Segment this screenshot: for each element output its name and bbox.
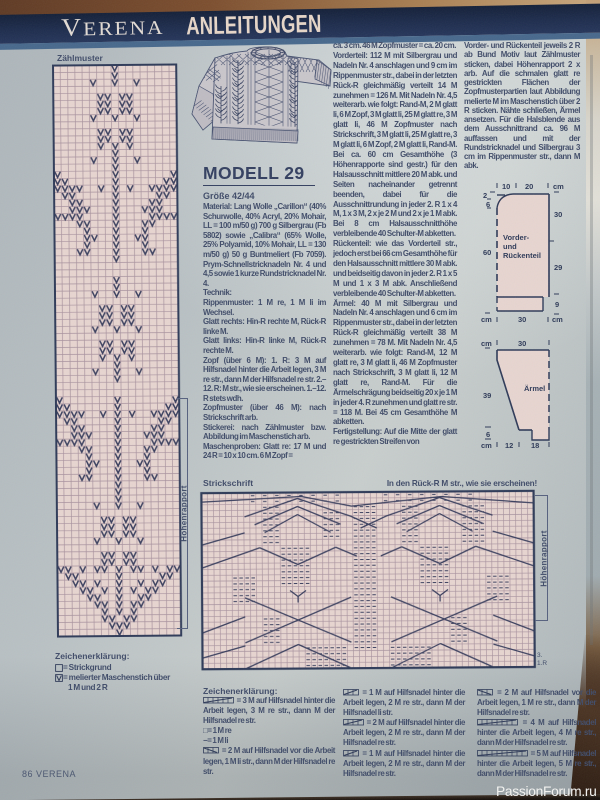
svg-text:Rückenteil: Rückenteil — [503, 251, 541, 260]
svg-text:Vorder-: Vorder- — [503, 233, 530, 242]
svg-text:29: 29 — [554, 263, 562, 272]
svg-text:18: 18 — [531, 441, 539, 449]
svg-text:39: 39 — [483, 391, 491, 400]
svg-text:30: 30 — [518, 339, 526, 348]
svg-text:20: 20 — [525, 182, 533, 191]
svg-text:cm: cm — [481, 315, 492, 323]
svg-text:cm: cm — [553, 182, 564, 191]
svg-text:cm: cm — [481, 441, 492, 449]
svg-text:30: 30 — [518, 315, 526, 323]
svg-text:cm: cm — [552, 315, 563, 323]
svg-text:10: 10 — [502, 182, 510, 191]
svg-text:und: und — [503, 242, 517, 251]
svg-text:2: 2 — [483, 191, 487, 200]
svg-text:9: 9 — [555, 300, 559, 309]
svg-text:6: 6 — [486, 430, 490, 439]
svg-text:cm: cm — [481, 339, 492, 348]
svg-text:30: 30 — [554, 210, 562, 219]
svg-text:60: 60 — [483, 248, 491, 257]
svg-text:12: 12 — [505, 441, 513, 449]
svg-text:Ärmel: Ärmel — [524, 384, 545, 393]
